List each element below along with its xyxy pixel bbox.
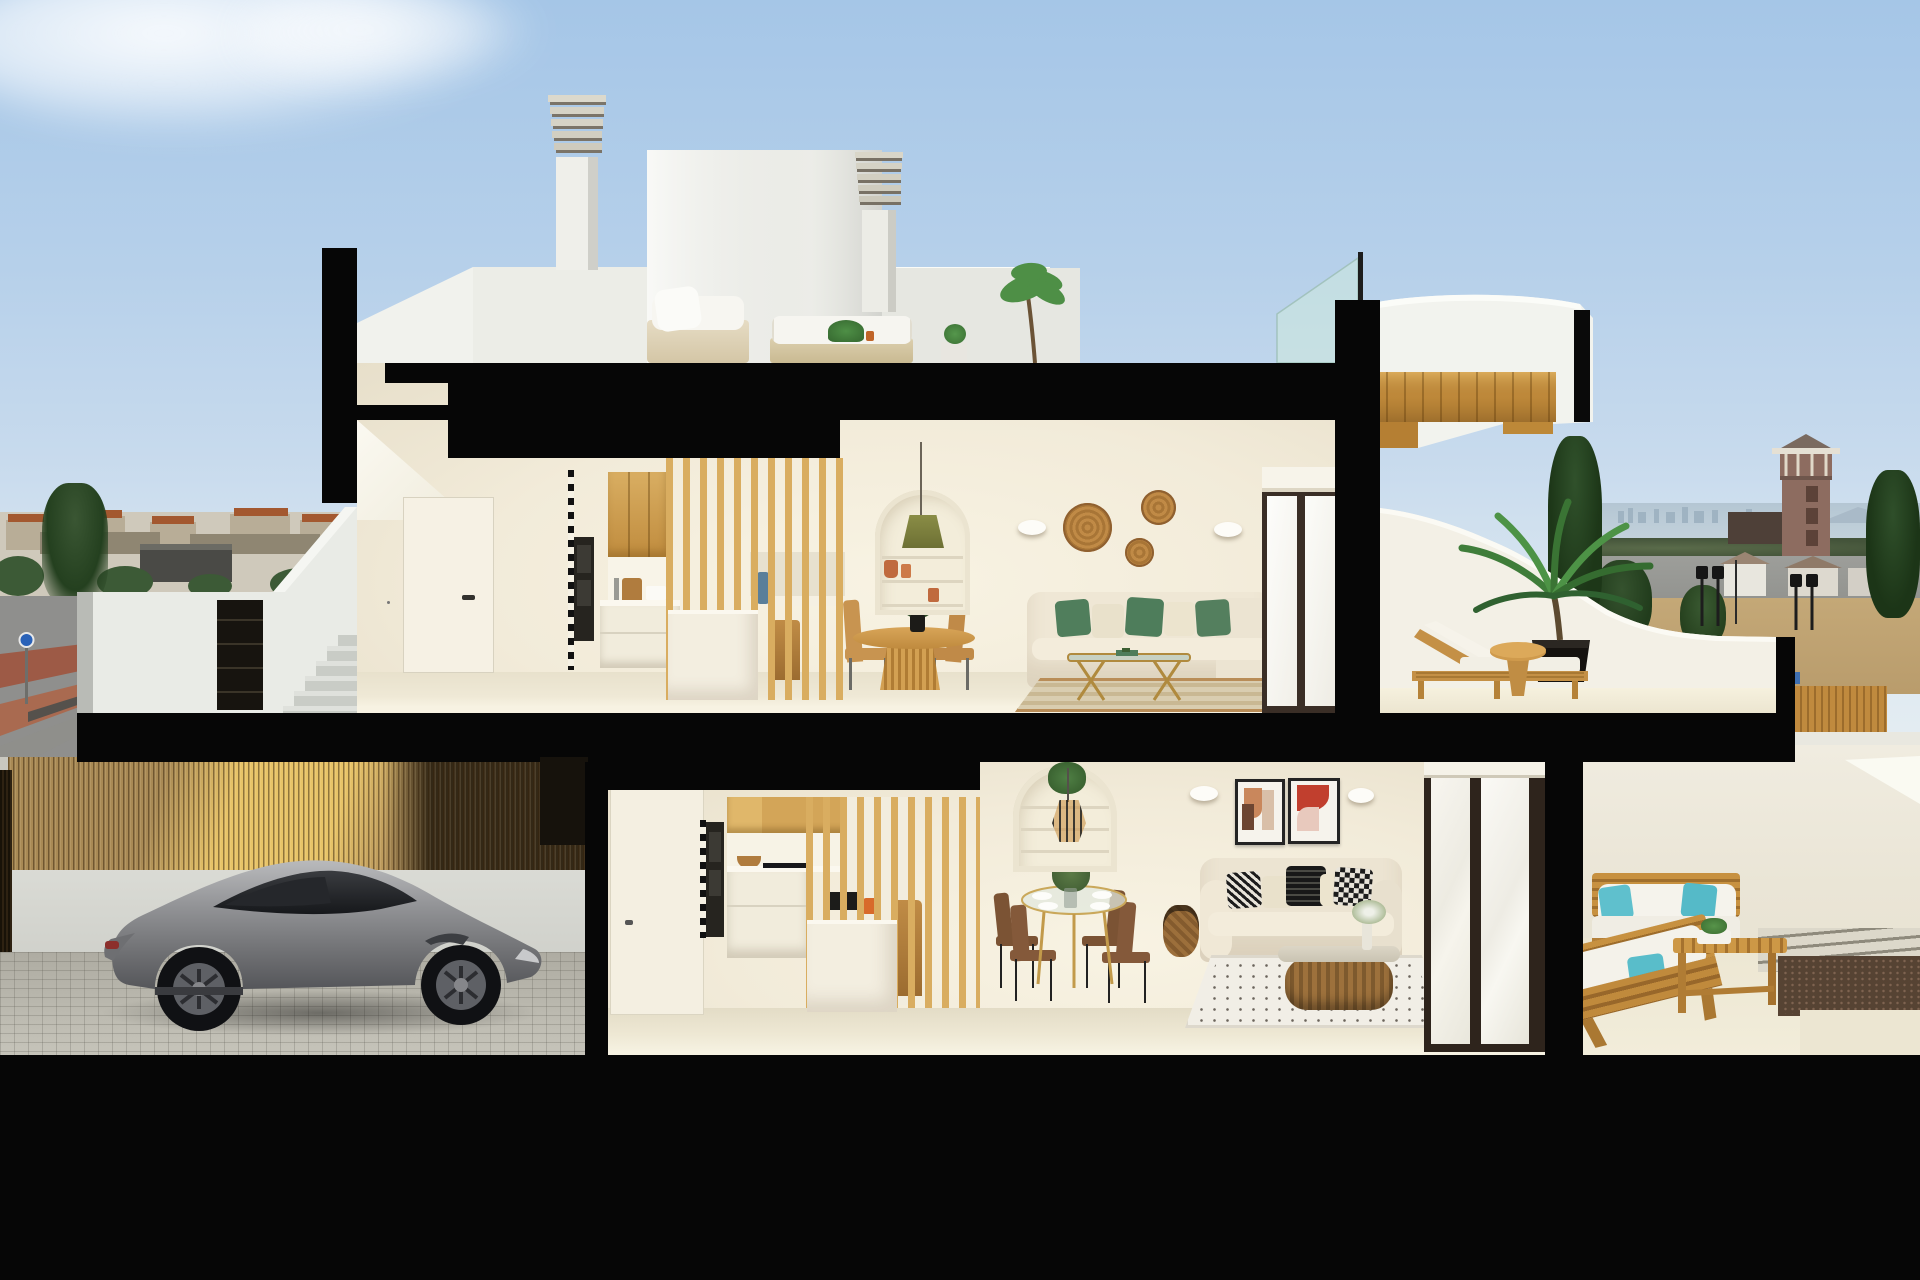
cabinet-divider [648,472,650,557]
terracotta-pot [884,560,898,578]
roof-tree [995,258,1075,363]
pendant-cord [920,442,922,516]
chair-leg [849,658,852,690]
dark-fence-edge [0,770,12,965]
ground-section-band [0,1055,1920,1280]
niche-shelf [882,580,963,583]
glass-pane [1267,496,1297,706]
coffee-table-upper [1064,648,1194,704]
dining-table-pedestal [880,646,940,690]
gravel-texture [1782,958,1920,1014]
ground-hall-door [610,785,704,1015]
chimney-left [546,95,608,270]
sports-car [95,845,547,1035]
roller-blind-housing [1262,467,1340,492]
glass-pane [1305,496,1335,706]
section-column-left [322,248,357,503]
oven-face [709,870,721,896]
door-keyhole [387,601,390,604]
wall-sconce [1214,522,1242,537]
upper-ceiling-slab-thick [448,420,840,458]
garage-dark-corner [540,757,588,845]
niche-shelf [1021,850,1109,853]
green-pillow [1195,599,1231,637]
arched-niche-upper [875,490,970,615]
rattan-coffee-table [1285,958,1393,1010]
chair-leg [1144,961,1146,1003]
glass-vase [1064,888,1077,908]
kitchen-island-ground [807,920,897,1012]
centerpiece-vase [910,614,925,632]
street-wood-fence [1795,686,1887,736]
render-canvas: Cross-section 3D render of a modern two-… [0,0,1920,1280]
induction-hob [763,863,808,868]
section-column-ground-left [585,762,608,1057]
cooking-pot [646,586,666,600]
rattan-wall-basket [1125,538,1154,567]
kitchen-island-upper [668,610,758,700]
section-stair-step [385,363,448,383]
wall-sconce [1348,788,1374,803]
section-column-ground-right [1545,762,1583,1057]
oven-face [577,580,591,606]
niche-shelf [882,604,963,607]
door-handle [462,595,475,600]
cream-pillow [1164,602,1195,636]
rattan-urn [1163,905,1199,957]
green-pillow [1125,597,1165,637]
rattan-wall-basket [1063,503,1112,552]
terrace-side-table [1488,640,1548,698]
glass-pane-blind [1431,770,1470,1044]
coffee-table-top [1278,946,1400,962]
drawer-line [727,905,808,907]
niche-shelf [882,556,963,559]
vase-flowers [1352,900,1386,924]
chimney-right [853,152,905,312]
roof-pot [941,342,967,363]
tall-conifer [1866,470,1920,618]
section-column-right-upper [1335,300,1380,762]
pendant-cord [1067,768,1069,802]
bench-leg [1678,953,1686,1013]
wall-sconce [1018,520,1046,535]
wall-art-left [1235,779,1285,845]
roof-pot-plant [944,324,966,344]
upper-ceiling-slab [448,363,1335,420]
wing-roof [1375,290,1605,452]
wall-sconce [1190,786,1218,801]
terracotta-pot [928,588,939,602]
roof-plant [828,320,864,342]
bench-leg [1768,953,1776,1005]
bench-plant [1701,918,1727,934]
oven-face [709,832,721,862]
patio-path [1800,1010,1920,1056]
cream-pillow [1092,604,1124,638]
cutting-board [622,578,642,600]
bottle [614,578,619,600]
section-stair-step [353,405,448,420]
blind-housing [1424,762,1545,778]
base-cabinets-ground [727,872,808,958]
chair-leg [966,658,969,690]
roof-sofa-pillow [653,285,702,333]
glass-pane-blind [1481,770,1529,1044]
oven-face [577,545,591,573]
door-handle [625,920,633,925]
upper-cabinets [608,472,668,557]
rattan-wall-basket [1141,490,1176,525]
cabinet-divider [628,472,630,557]
roof-vase [866,331,874,341]
terracotta-pot [901,564,911,578]
chair-leg [1000,944,1002,988]
bw-pattern-pillow [1226,871,1262,909]
chair-leg [1015,959,1017,1001]
wall-art-right [1288,778,1340,844]
terrace-edge-bar [1776,637,1795,762]
green-pillow [1054,599,1091,638]
inter-floor-slab-thick [594,762,980,790]
upper-hall-door [403,497,494,673]
inter-floor-slab [77,713,1793,762]
